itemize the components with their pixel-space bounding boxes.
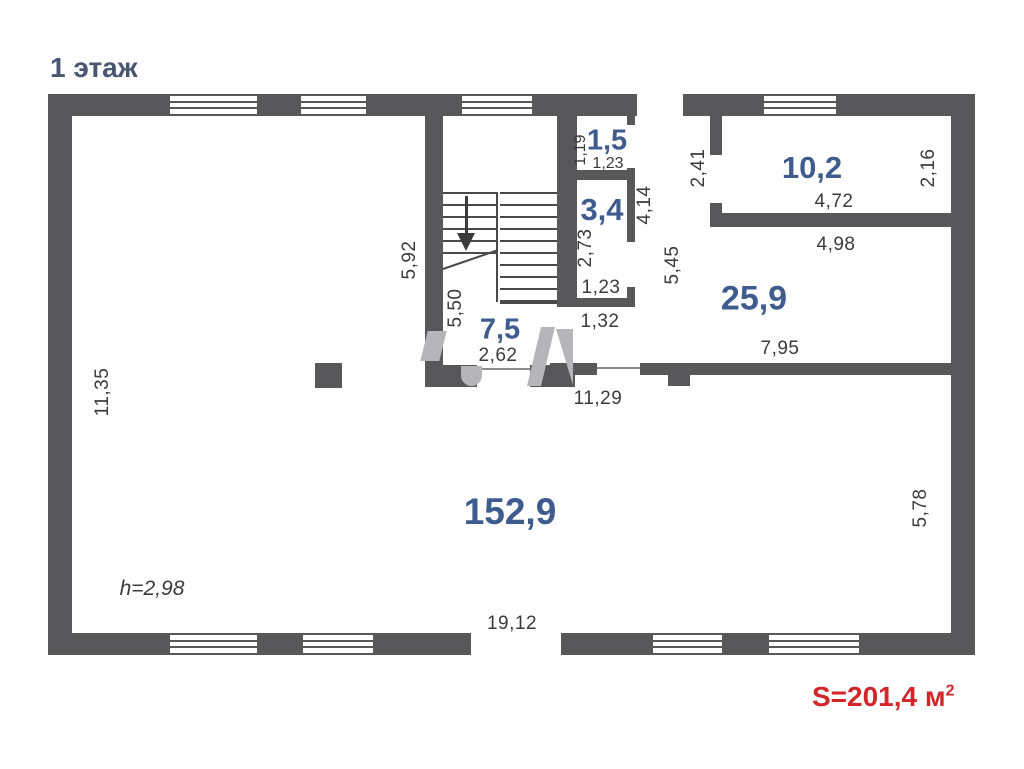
dim-corridor-top: 4,14 [634,186,656,225]
dim-room-10-2-width: 4,72 [815,191,854,213]
door-corridor-threshold [597,367,640,369]
room-area-main-hall: 152,9 [464,491,557,533]
window-bottom-3 [653,635,722,653]
room-area-25-9: 25,9 [721,280,787,319]
window-top-1 [170,96,257,114]
dim-room-3-4-width: 1,23 [582,277,621,299]
dim-passage-width: 1,32 [581,311,620,333]
window-bottom-2 [303,635,373,653]
window-top-2 [301,96,366,114]
window-bottom-1 [170,635,257,653]
dim-room-10-2-height: 2,16 [918,149,940,188]
dim-room-3-4-height: 2,73 [575,229,597,268]
dim-room-1-5-width: 1,23 [592,155,623,173]
door-stairhall-threshold [477,368,530,370]
dim-door-2-41: 2,41 [688,149,710,188]
column-corridor [668,363,690,386]
floor-plan-canvas: 1 этаж 152,9 25,9 10,2 7,5 3,4 [0,0,1024,769]
watermark-fragment [461,366,482,386]
dim-stair-hall-width: 2,62 [479,345,518,367]
door-corridor-hall [597,363,640,375]
dim-stairwell-height: 5,92 [399,241,421,280]
window-top-4 [764,96,836,114]
dim-hall-top-width: 11,29 [574,388,623,410]
room-area-stair-hall: 7,5 [480,314,520,347]
stairs-right-flight [500,192,557,304]
window-top-3 [462,96,532,114]
door-room15 [627,125,635,168]
wall-outer-right [951,94,975,655]
room-area-10-2: 10,2 [782,150,842,186]
dim-room-25-9-top: 4,98 [817,234,856,256]
wall-room102-bottom [710,213,951,227]
total-area-value: S=201,4 м [812,681,946,712]
ceiling-height-label: h=2,98 [120,577,185,601]
column-hall [315,363,342,388]
floor-title: 1 этаж [50,52,138,84]
stairs-down-arrowhead [457,233,475,251]
stairs-divider-line [496,192,498,302]
dim-left-height: 11,35 [92,368,114,417]
window-bottom-4 [769,635,859,653]
door-room102 [710,155,722,203]
total-area-label: S=201,4 м2 [812,681,955,713]
entrance-opening [637,94,683,116]
room-area-3-4: 3,4 [580,192,623,228]
dim-room-1-5-height: 1,19 [572,134,590,165]
door-room34 [627,242,635,287]
wall-outer-left [48,94,72,655]
dim-stair-hall-height: 5,50 [445,289,467,328]
room-area-1-5: 1,5 [587,125,627,158]
door-opening-bottom [471,633,561,655]
dim-right-height: 5,78 [910,489,932,528]
dim-hall-bottom-width: 19,12 [487,613,537,635]
wall-room34-bottom [557,298,635,307]
stairs-down-arrow [465,196,468,234]
dim-room-25-9-bottom: 7,95 [761,338,800,360]
dim-corridor-height: 5,45 [662,246,684,285]
total-area-superscript: 2 [946,683,955,700]
